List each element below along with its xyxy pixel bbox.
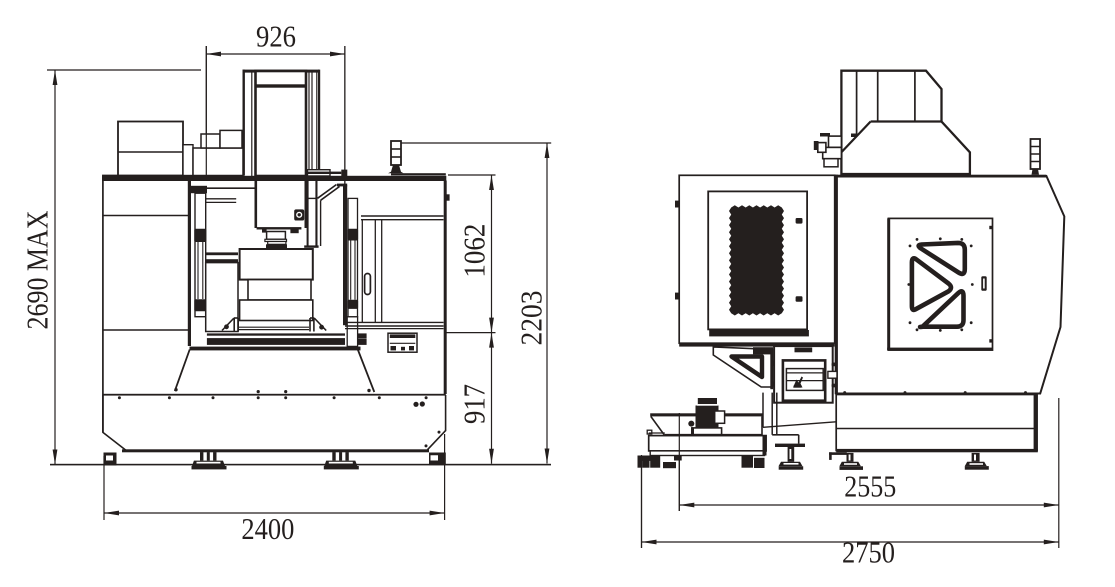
svg-text:926: 926 [256,19,296,54]
svg-text:2750: 2750 [842,535,895,570]
svg-text:2555: 2555 [844,469,896,504]
svg-text:917: 917 [457,384,492,424]
svg-text:2690 MAX: 2690 MAX [20,211,55,330]
svg-text:2203: 2203 [514,291,549,346]
svg-text:1062: 1062 [456,224,491,278]
svg-text:2400: 2400 [241,511,294,546]
